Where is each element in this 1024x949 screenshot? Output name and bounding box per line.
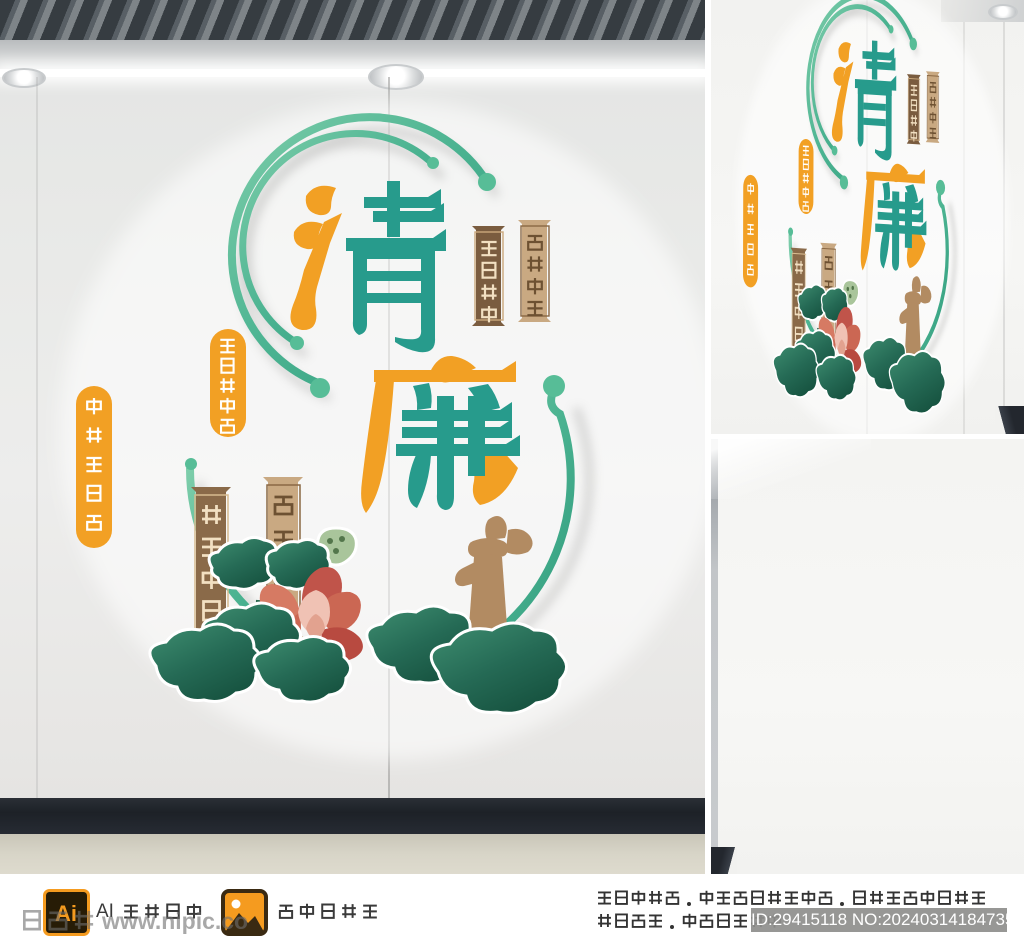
svg-text:www.nipic.com: www.nipic.com [101,908,248,934]
